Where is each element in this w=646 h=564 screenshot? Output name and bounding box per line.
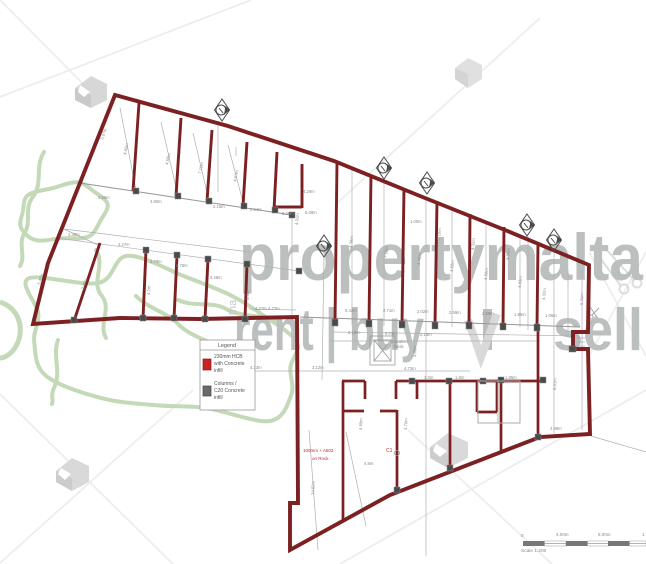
svg-text:tha: tha (227, 299, 239, 315)
svg-text:2.19m: 2.19m (348, 330, 360, 335)
svg-text:100mm + A503: 100mm + A503 (303, 448, 334, 453)
svg-text:with Concrete: with Concrete (214, 361, 245, 367)
svg-text:4.70m: 4.70m (403, 418, 408, 430)
svg-text:3.0m: 3.0m (424, 375, 434, 380)
svg-text:2.76m: 2.76m (176, 263, 188, 268)
svg-text:C1: C1 (386, 448, 393, 454)
svg-text:2.54m: 2.54m (250, 207, 262, 212)
svg-text:4.43m: 4.43m (517, 276, 523, 289)
svg-text:4.27m: 4.27m (118, 242, 130, 247)
svg-text:1.86m: 1.86m (514, 312, 526, 317)
svg-text:3.12m: 3.12m (312, 365, 324, 370)
svg-text:Columns /: Columns / (214, 381, 237, 387)
svg-text:on Rock: on Rock (312, 456, 329, 461)
svg-text:4.2m: 4.2m (146, 285, 151, 295)
svg-text:2.28m: 2.28m (282, 211, 294, 216)
svg-text:7.10m: 7.10m (197, 161, 204, 174)
svg-text:6.30m: 6.30m (579, 293, 584, 305)
svg-text:5.08m: 5.08m (305, 210, 317, 215)
svg-text:4.90m: 4.90m (150, 199, 162, 204)
svg-text:4.00m: 4.00m (556, 532, 569, 537)
svg-text:4.85m: 4.85m (358, 418, 363, 430)
svg-text:2.58m: 2.58m (482, 311, 494, 316)
svg-text:4.67m: 4.67m (232, 169, 239, 182)
svg-text:sell: sell (553, 297, 643, 363)
svg-text:infill: infill (214, 368, 223, 374)
svg-text:1.00m: 1.00m (410, 219, 422, 224)
svg-text:4.36m: 4.36m (505, 248, 511, 261)
svg-text:8.00m: 8.00m (598, 532, 611, 537)
svg-text:5.3m: 5.3m (245, 290, 250, 300)
svg-text:0.73m: 0.73m (385, 331, 397, 336)
svg-text:3.05m: 3.05m (412, 345, 417, 357)
svg-text:4.62m: 4.62m (449, 260, 455, 273)
svg-text:2.16m: 2.16m (420, 332, 432, 337)
svg-text:7.10m: 7.10m (383, 246, 389, 259)
svg-text:4.27m: 4.27m (255, 306, 267, 311)
svg-text:1.8m: 1.8m (455, 375, 465, 380)
svg-text:1.06m: 1.06m (545, 313, 557, 318)
svg-text:4.13m: 4.13m (250, 365, 262, 370)
svg-text:4.50m: 4.50m (483, 268, 489, 281)
svg-text:6.01m: 6.01m (552, 378, 557, 390)
svg-text:14.02m: 14.02m (310, 480, 316, 495)
svg-text:Scale 1:200: Scale 1:200 (521, 548, 547, 554)
svg-text:4.60m: 4.60m (122, 142, 129, 155)
svg-text:4.50m: 4.50m (98, 195, 110, 200)
svg-text:230mm HCB: 230mm HCB (214, 354, 243, 360)
svg-text:1.85m: 1.85m (505, 375, 517, 380)
svg-text:4.32m: 4.32m (541, 288, 547, 301)
svg-text:2.59m: 2.59m (449, 310, 461, 315)
svg-text:2.71m: 2.71m (383, 308, 395, 313)
svg-text:2.79m: 2.79m (150, 259, 162, 264)
svg-text:4.98m: 4.98m (550, 426, 562, 431)
svg-text:Desk: Desk (394, 344, 404, 349)
svg-text:Legend: Legend (218, 343, 236, 349)
svg-text:2.02m: 2.02m (417, 309, 429, 314)
svg-text:4.31m: 4.31m (470, 238, 476, 251)
svg-text:4.77m: 4.77m (268, 306, 280, 311)
svg-text:0.42m: 0.42m (345, 308, 357, 313)
svg-text:4.38m: 4.38m (348, 236, 354, 249)
svg-text:4.8m: 4.8m (364, 461, 374, 466)
svg-text:7.10m: 7.10m (436, 228, 442, 241)
svg-text:4.30m: 4.30m (68, 232, 80, 237)
svg-text:4.73m: 4.73m (404, 366, 416, 371)
svg-text:2.15m: 2.15m (213, 204, 225, 209)
svg-text:4.29m: 4.29m (303, 189, 315, 194)
svg-text:C20 Concrete: C20 Concrete (214, 388, 245, 394)
svg-text:4.42m: 4.42m (416, 253, 422, 266)
svg-text:infill: infill (214, 395, 223, 401)
svg-text:3.28m: 3.28m (210, 275, 222, 280)
svg-text:1: 1 (642, 532, 645, 537)
svg-text:4.31m: 4.31m (294, 213, 300, 226)
